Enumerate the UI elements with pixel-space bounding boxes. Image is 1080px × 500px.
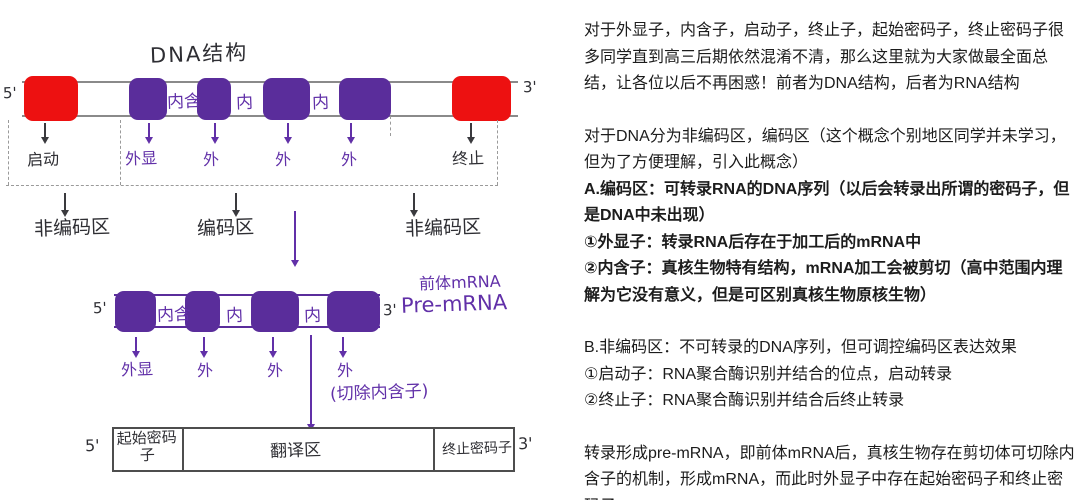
region-divider-dash xyxy=(390,116,391,136)
mrna-cell-divider xyxy=(182,429,184,470)
transcription-arrow-icon xyxy=(294,211,296,261)
promoter-label: 启动 xyxy=(27,145,60,170)
mrna-start-codon-cell: 起始密码子 xyxy=(115,429,178,465)
pre-mrna-exon-label: 外 xyxy=(197,357,214,382)
region-bracket-dash xyxy=(6,185,498,186)
down-arrow-icon xyxy=(44,123,46,138)
mrna-translation-region-cell: 翻译区 xyxy=(270,435,322,462)
notes-promoter-def: ①启动子：RNA聚合酶识别并结合的位点，启动转录 xyxy=(584,362,1076,389)
pre-mrna-exon-label: 外 xyxy=(267,357,284,382)
pre-mrna-exon-block xyxy=(251,291,299,332)
pre-mrna-three-prime-label: 3' xyxy=(383,301,397,319)
dna-promoter-block xyxy=(24,76,78,121)
region-divider-dash xyxy=(8,120,9,185)
dna-intron-label: 内 xyxy=(312,88,330,114)
mrna-stop-codon-cell: 终止密码子 xyxy=(442,437,513,459)
down-arrow-icon xyxy=(135,337,137,352)
down-arrow-icon xyxy=(350,123,352,138)
pre-mrna-exon-block xyxy=(115,291,156,332)
pre-mrna-exon-label: 外 xyxy=(337,357,354,382)
mrna-cell-divider xyxy=(433,429,435,470)
dna-intron-label: 内 xyxy=(236,88,254,114)
down-arrow-icon xyxy=(287,123,289,138)
dna-exon-block xyxy=(263,78,310,120)
diagram-title: DNA结构 xyxy=(150,36,249,69)
down-arrow-icon xyxy=(235,193,237,211)
down-arrow-icon xyxy=(148,123,150,138)
screenshot: DNA结构 内含 内 内 5' 3' 启动 外显 外 外 外 终止 xyxy=(0,0,1080,500)
dna-three-prime-label: 3' xyxy=(523,78,537,96)
notes-dna-regions: 对于DNA分为非编码区，编码区（这个概念个别地区同学并未学习，但为了方便理解，引… xyxy=(584,124,1076,177)
region-label-noncoding-left: 非编码区 xyxy=(34,212,111,242)
exon-label: 外 xyxy=(203,146,220,171)
region-label-noncoding-right: 非编码区 xyxy=(405,212,482,242)
notes-intro: 对于外显子，内含子，启动子，终止子，起始密码子，终止密码子很多同学直到高三后期依… xyxy=(584,18,1076,98)
dna-exon-block xyxy=(339,78,391,120)
splice-note: (切除内含子) xyxy=(330,376,429,404)
dna-exon-block xyxy=(129,78,167,120)
down-arrow-icon xyxy=(64,193,66,211)
notes-premrna-para: 转录形成pre-mRNA，即前体mRNA后，真核生物存在剪切体可切除内含子的机制… xyxy=(584,441,1076,500)
dna-five-prime-label: 5' xyxy=(3,84,17,102)
notes-panel: 对于外显子，内含子，启动子，终止子，起始密码子，终止密码子很多同学直到高三后期依… xyxy=(584,18,1076,500)
dna-intron-label: 内含 xyxy=(167,86,202,112)
splicing-arrow-icon xyxy=(310,335,312,425)
mrna-five-prime-label: 5' xyxy=(85,436,100,455)
exon-label: 外显 xyxy=(125,144,158,169)
region-divider-dash xyxy=(120,120,121,185)
down-arrow-icon xyxy=(272,337,274,352)
diagram-panel: DNA结构 内含 内 内 5' 3' 启动 外显 外 外 外 终止 xyxy=(0,0,580,500)
notes-terminator-def: ②终止子：RNA聚合酶识别并结合后终止转录 xyxy=(584,388,1076,415)
notes-intron-def: ②内含子：真核生物特有结构，mRNA加工会被剪切（高中范围内理解为它没有意义，但… xyxy=(584,256,1076,309)
region-divider-dash xyxy=(497,120,498,185)
notes-noncoding-head: B.非编码区：不可转录的DNA序列，但可调控编码区表达效果 xyxy=(584,335,1076,362)
pre-mrna-title-en: Pre-mRNA xyxy=(401,290,508,318)
terminator-label: 终止 xyxy=(452,144,485,169)
down-arrow-icon xyxy=(342,337,344,352)
exon-label: 外 xyxy=(275,146,292,171)
down-arrow-icon xyxy=(214,123,216,138)
pre-mrna-exon-block xyxy=(327,291,380,332)
pre-mrna-intron-label: 内 xyxy=(226,301,244,327)
pre-mrna-exon-label: 外显 xyxy=(121,355,154,380)
pre-mrna-intron-label: 内 xyxy=(304,301,322,327)
down-arrow-icon xyxy=(470,123,472,138)
pre-mrna-intron-label: 内含 xyxy=(157,299,192,325)
dna-terminator-block xyxy=(452,76,511,121)
notes-coding-region-head: A.编码区：可转录RNA的DNA序列（以后会转录出所谓的密码子，但是DNA中未出… xyxy=(584,177,1076,230)
dna-exon-block xyxy=(197,78,231,120)
down-arrow-icon xyxy=(413,193,415,211)
mrna-three-prime-label: 3' xyxy=(518,434,533,453)
exon-label: 外 xyxy=(341,146,358,171)
down-arrow-icon xyxy=(203,337,205,352)
pre-mrna-five-prime-label: 5' xyxy=(93,299,107,317)
region-label-coding: 编码区 xyxy=(197,212,255,241)
notes-exon-def: ①外显子：转录RNA后存在于加工后的mRNA中 xyxy=(584,230,1076,257)
